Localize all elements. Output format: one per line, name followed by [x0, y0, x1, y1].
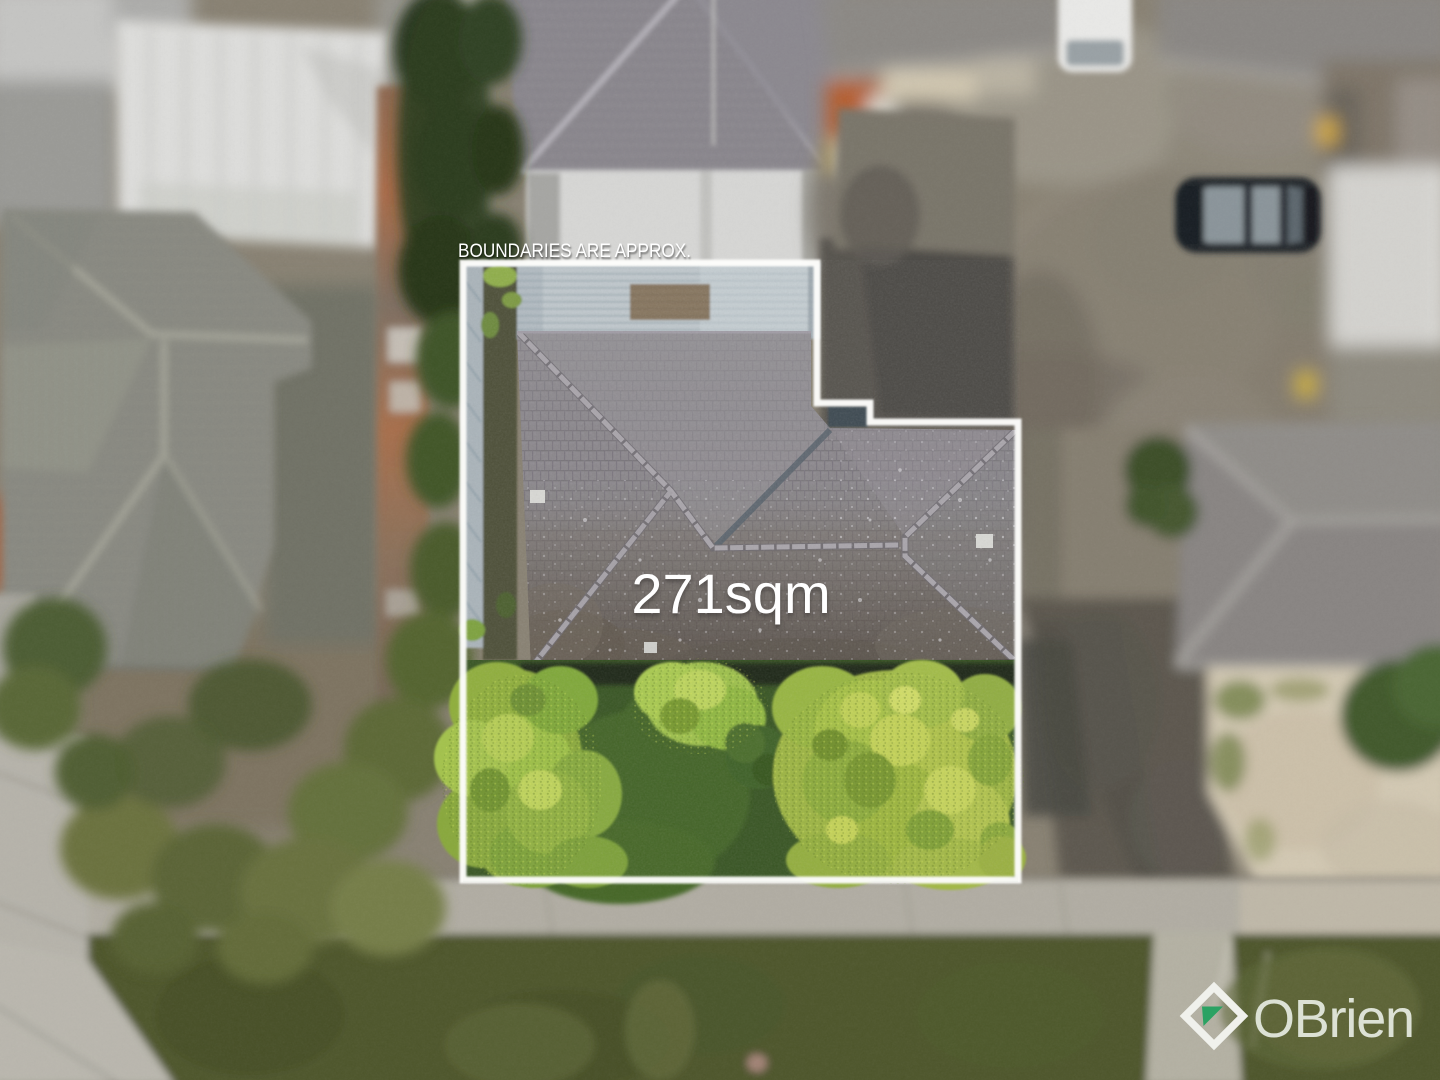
svg-text:OBrien: OBrien	[1253, 989, 1414, 1049]
svg-text:BOUNDARIES ARE APPROX.: BOUNDARIES ARE APPROX.	[458, 240, 691, 262]
svg-text:271sqm: 271sqm	[631, 562, 830, 625]
